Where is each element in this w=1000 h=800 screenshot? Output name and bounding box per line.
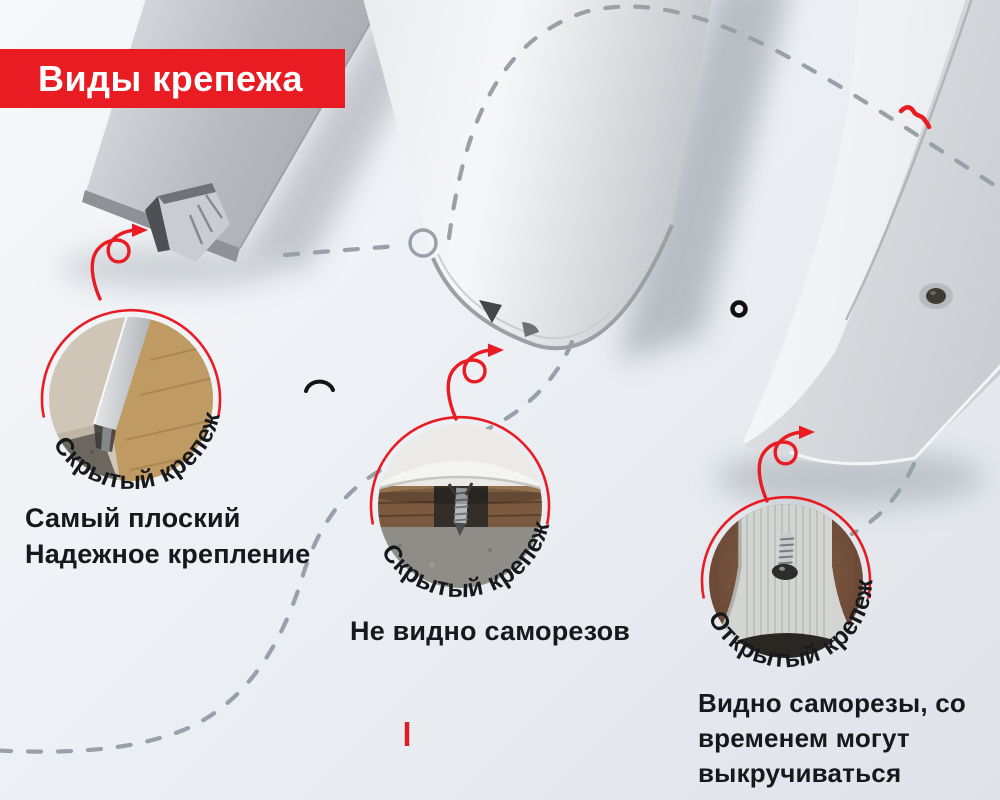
description-t-profile: Самый плоский Надежное крепление [25,500,310,572]
description-line: Видно саморезы, со [698,686,966,721]
profile-flat-screwed [742,0,1000,464]
description-line: Самый плоский [25,500,310,536]
description-line: Надежное крепление [25,536,310,572]
title-banner: Виды крепежа [0,49,345,108]
inset-photo-domed: Скрытый крепеж [366,417,555,603]
inset-photo-ribbed: Открытый крепеж [700,497,878,673]
scene-graphics: Скрытый крепеж [0,0,1000,800]
infographic-fastening-types: Скрытый крепеж [0,0,1000,800]
description-domed: Не видно саморезов [350,613,630,649]
description-line: выкручиваться [698,756,966,791]
inset-photo-t-profile: Скрытый крепеж [42,310,226,495]
donut-mark [733,303,746,316]
spiral-arrow-2 [448,344,504,420]
description-line: временем могут [698,721,966,756]
description-open: Видно саморезы, со временем могут выкруч… [698,686,966,791]
arc-mark [306,382,333,391]
page-title: Виды крепежа [38,58,303,100]
description-line: Не видно саморезов [350,613,630,649]
screw-hole [919,283,953,309]
